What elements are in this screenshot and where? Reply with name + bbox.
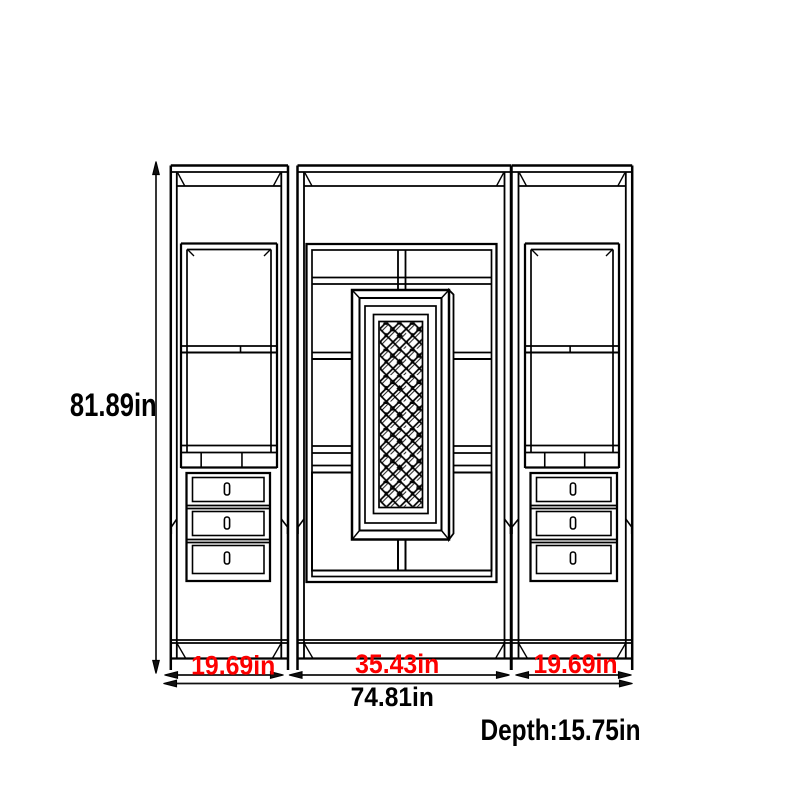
svg-text:19.69in: 19.69in [533, 650, 617, 679]
svg-text:81.89in: 81.89in [70, 388, 157, 423]
svg-text:19.69in: 19.69in [191, 652, 275, 681]
svg-text:74.81in: 74.81in [351, 683, 434, 712]
svg-text:35.43in: 35.43in [355, 650, 439, 679]
svg-text:Depth:15.75in: Depth:15.75in [480, 713, 640, 747]
